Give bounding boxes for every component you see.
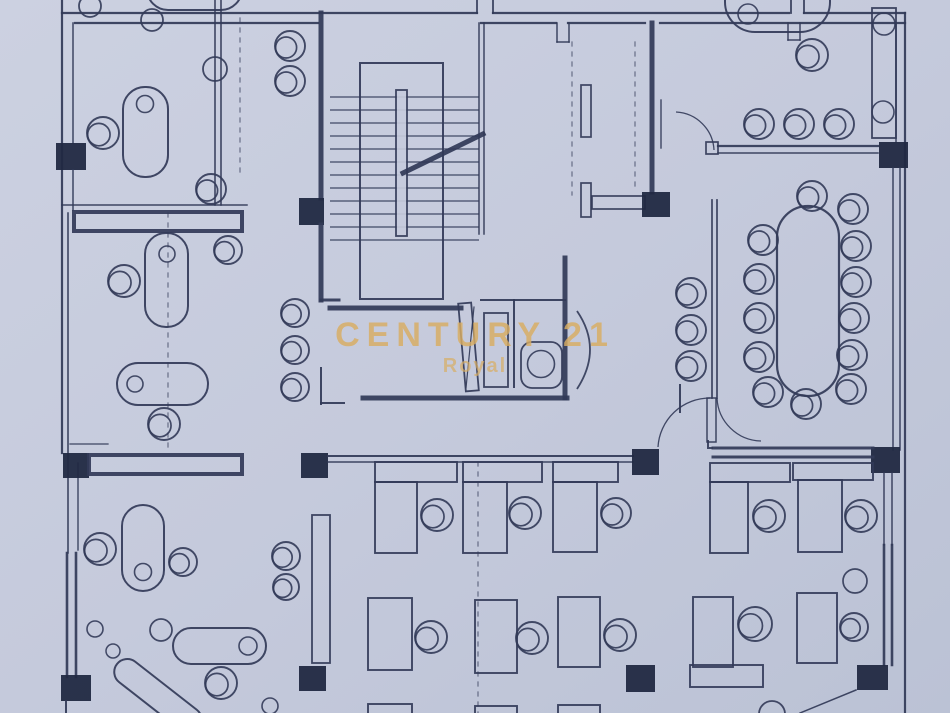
column xyxy=(857,665,888,690)
column xyxy=(61,675,91,701)
column xyxy=(299,198,324,225)
column xyxy=(871,447,900,473)
column xyxy=(626,665,655,692)
floor-plan-page: CENTURY 21 Royal xyxy=(0,0,950,713)
stair-rail xyxy=(396,90,407,236)
column xyxy=(299,666,326,691)
column xyxy=(879,142,908,168)
column xyxy=(632,449,659,475)
column xyxy=(63,453,89,478)
column xyxy=(642,192,670,217)
floor-plan xyxy=(0,0,950,713)
column xyxy=(301,453,328,478)
column xyxy=(56,143,86,170)
